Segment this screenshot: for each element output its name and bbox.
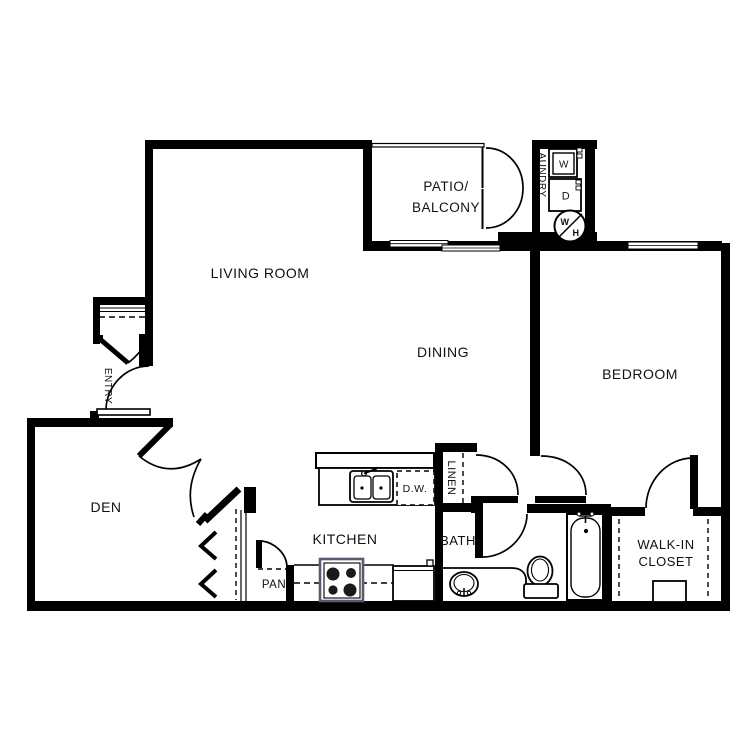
den-closet-angled-wall: [205, 489, 239, 521]
tub-drain: [584, 529, 588, 533]
bifold-door-marks: [201, 532, 216, 597]
wall-bedroom-left: [530, 249, 540, 456]
pantry-door-arc: [262, 541, 287, 566]
pantry-door-leaf: [256, 540, 262, 568]
patio-door-arc-top: [486, 148, 523, 188]
patio-door-arc-bottom: [486, 188, 523, 228]
refrigerator: [393, 560, 434, 601]
burner: [327, 568, 340, 581]
kitchen-fixtures: D.W.: [294, 453, 434, 601]
angled-walls: [101, 340, 239, 524]
window-patio-1: [390, 241, 448, 248]
burner: [344, 584, 357, 597]
dining-label: DINING: [417, 344, 469, 360]
den-closet-arc: [190, 459, 201, 517]
den-closet-step: [198, 514, 207, 524]
bifold-chevron-1: [201, 532, 216, 559]
closet-door-leaf: [690, 455, 698, 509]
bedroom-door-leaf: [535, 496, 586, 503]
toilet: [524, 557, 558, 599]
wall-kitchen-bath: [435, 443, 443, 603]
bathroom-sink: [450, 572, 478, 597]
bifold-chevron-2: [201, 570, 216, 597]
wall-living-left: [145, 140, 153, 366]
linen-label: LINEN: [445, 461, 457, 496]
wall-bath-top-right: [527, 504, 611, 513]
den-door-arc: [139, 456, 201, 469]
closet-door-arc: [646, 458, 693, 508]
wall-entry-closet-top: [93, 297, 153, 305]
wall-right: [721, 243, 730, 611]
patio-label-line1: PATIO/: [423, 179, 468, 194]
wall-laundry-right: [585, 140, 595, 241]
wall-bottom: [27, 601, 730, 611]
burner: [328, 585, 337, 594]
hall-door-arc: [476, 455, 518, 495]
kitchen-bar-counter: [316, 453, 434, 468]
living-room-label: LIVING ROOM: [211, 265, 310, 281]
burner: [346, 568, 356, 578]
pantry-label: PAN: [262, 579, 286, 591]
kitchen-sink: [350, 469, 393, 503]
bath-door-leaf: [475, 512, 483, 558]
walk-in-closet-label-line2: CLOSET: [638, 554, 693, 569]
den-door-leaf: [139, 425, 170, 456]
washer-label: W: [559, 160, 569, 171]
washer: W: [549, 148, 582, 177]
water-heater-w: W: [561, 217, 570, 227]
water-heater-h: H: [573, 228, 580, 238]
entry-closet-door-leaf: [101, 340, 128, 363]
wall-living-top: [145, 140, 372, 149]
closet-dresser: [653, 581, 686, 602]
dryer-label: D: [562, 191, 570, 203]
window-patio-2: [442, 245, 500, 251]
bedroom-door-arc: [541, 456, 586, 495]
bedroom-label: BEDROOM: [602, 366, 678, 382]
floor-plan: D.W.: [0, 0, 750, 750]
kitchen-label: KITCHEN: [313, 531, 378, 547]
entry-door-threshold: [97, 409, 150, 415]
walk-in-closet-label-line1: WALK-IN: [637, 537, 694, 552]
hall-door-leaf: [471, 496, 518, 503]
bath-door-arc: [483, 514, 527, 557]
wall-patio-left: [363, 143, 372, 247]
patio-railing: [372, 144, 484, 148]
laundry-label: LAUNDRY: [536, 146, 547, 197]
bathtub: [567, 512, 603, 600]
water-heater: W H: [555, 211, 586, 242]
wall-pantry-right: [286, 565, 294, 603]
window-bedroom: [628, 242, 698, 249]
patio-label-line2: BALCONY: [412, 200, 480, 215]
dishwasher: D.W.: [397, 471, 434, 505]
dishwasher-label: D.W.: [403, 483, 428, 495]
wall-closet-top-left: [611, 507, 645, 516]
wall-den-closet-corner: [244, 487, 256, 513]
bath-label: BATH: [440, 533, 476, 548]
floor-plan-page: D.W.: [0, 0, 750, 750]
den-label: DEN: [90, 499, 121, 515]
wall-bath-stub: [471, 503, 483, 513]
wall-den-top: [27, 418, 173, 427]
dryer: D: [549, 179, 581, 211]
wall-den-left: [27, 418, 35, 610]
stove: [320, 559, 363, 601]
laundry-fixtures: W D W H: [549, 148, 586, 242]
entry-label: ENTRY: [102, 368, 113, 404]
